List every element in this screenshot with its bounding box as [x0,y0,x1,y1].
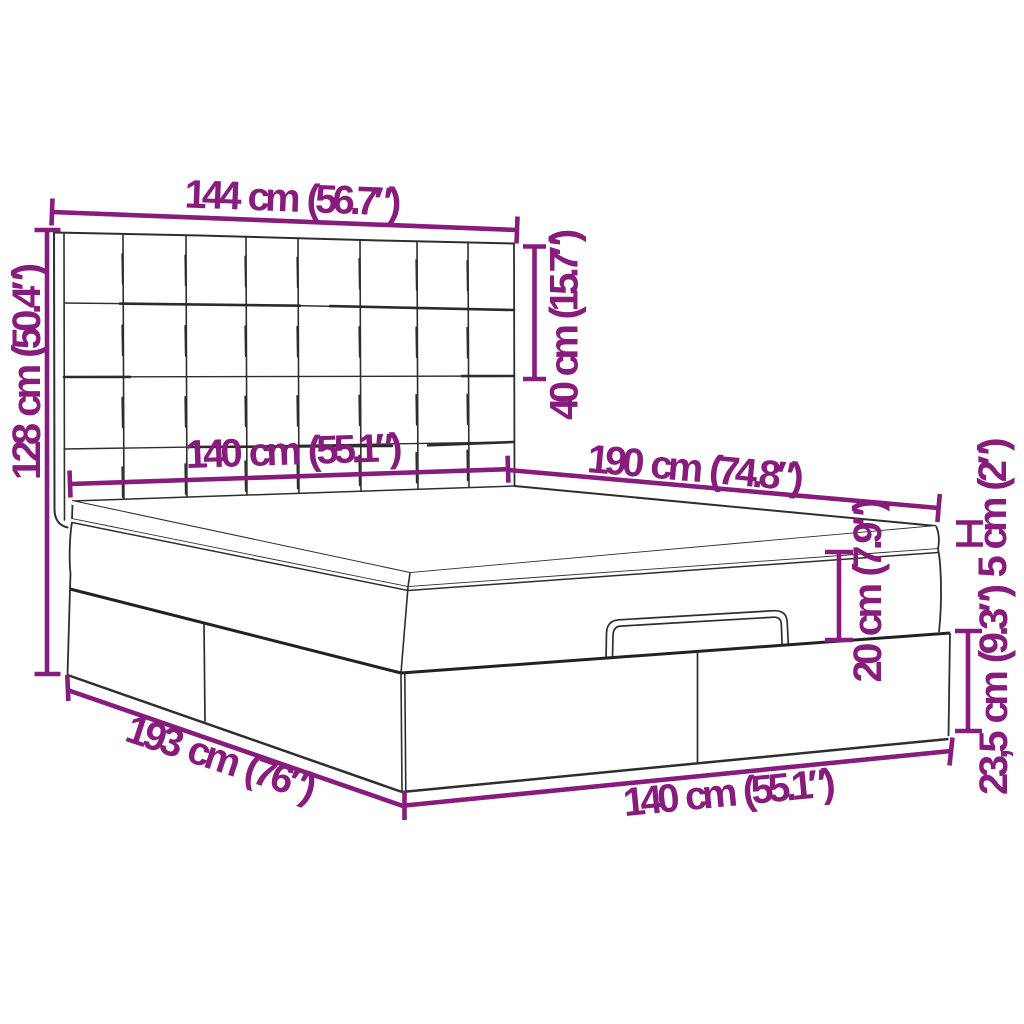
svg-text:128 cm (50.4″): 128 cm (50.4″) [5,264,49,480]
svg-text:23,5 cm (9.3″): 23,5 cm (9.3″) [972,585,1016,795]
svg-text:140 cm (55.1″): 140 cm (55.1″) [185,426,402,477]
svg-text:144 cm (56.7″): 144 cm (56.7″) [184,172,401,224]
svg-text:40 cm (15.7″): 40 cm (15.7″) [543,230,587,420]
svg-text:20 cm (7.9″): 20 cm (7.9″) [846,499,890,682]
svg-text:5 cm (2″): 5 cm (2″) [971,439,1015,578]
